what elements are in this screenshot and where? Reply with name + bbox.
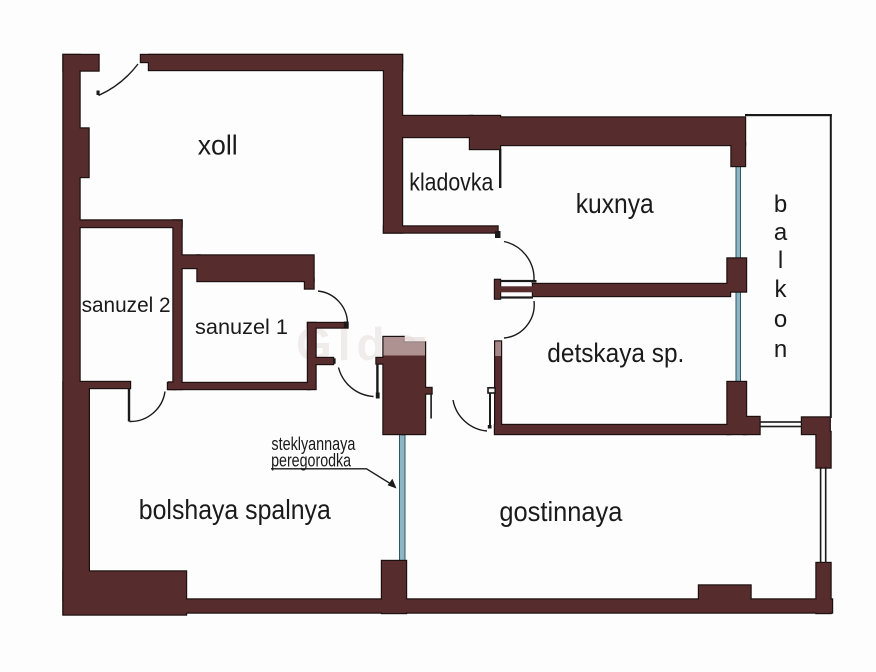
svg-text:k: k <box>775 276 788 303</box>
svg-text:l: l <box>778 247 783 274</box>
svg-text:a: a <box>774 219 788 246</box>
svg-text:b: b <box>774 191 787 218</box>
svg-text:kuxnya: kuxnya <box>576 188 654 219</box>
svg-text:o: o <box>774 306 787 333</box>
svg-text:kladovka: kladovka <box>409 169 493 197</box>
svg-text:detskaya sp.: detskaya sp. <box>547 338 684 368</box>
svg-text:xoll: xoll <box>198 130 238 161</box>
svg-text:gostinnaya: gostinnaya <box>499 496 623 527</box>
svg-text:bolshaya spalnya: bolshaya spalnya <box>139 494 332 525</box>
svg-text:n: n <box>774 336 787 363</box>
svg-text:sanuzel 2: sanuzel 2 <box>82 293 171 317</box>
svg-text:sanuzel 1: sanuzel 1 <box>195 315 288 339</box>
svg-text:peregorodka: peregorodka <box>271 451 352 471</box>
